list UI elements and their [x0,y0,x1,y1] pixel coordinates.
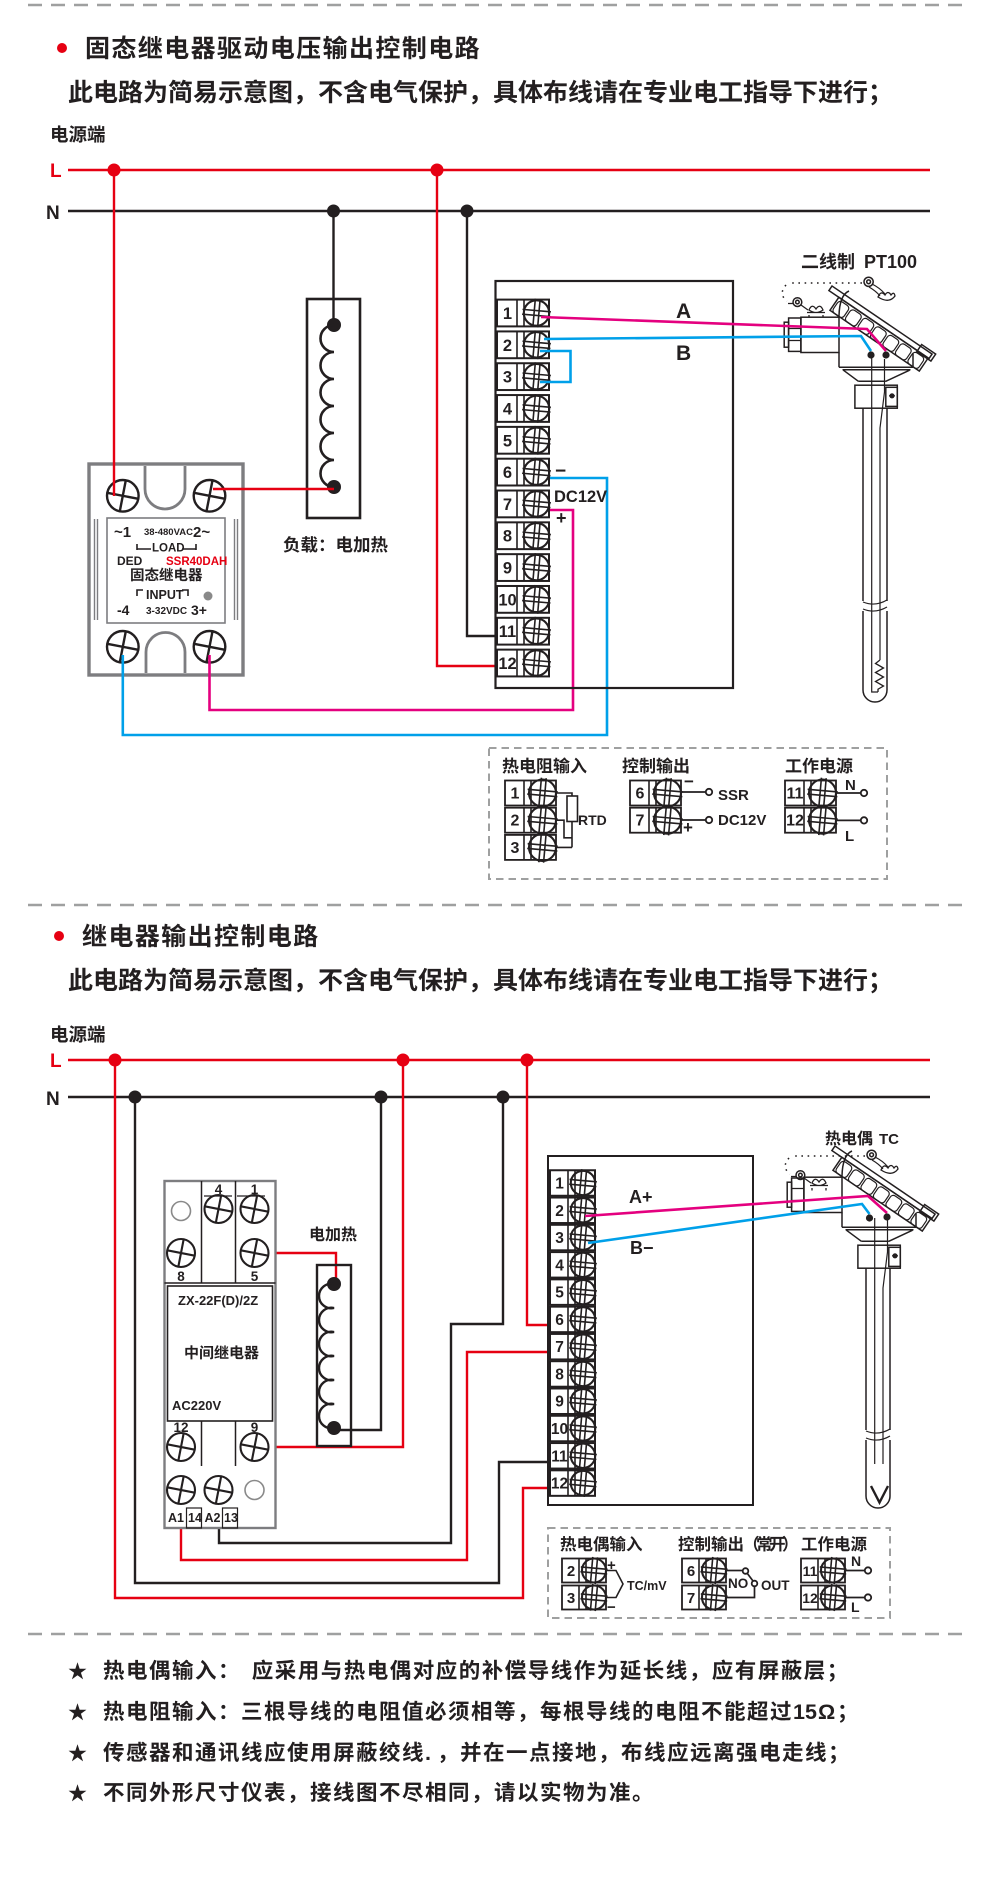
svg-text:7: 7 [555,1339,564,1356]
svg-text:A: A [676,300,691,323]
svg-text:1: 1 [555,1176,564,1193]
svg-text:L: L [845,828,854,845]
svg-text:7: 7 [687,1590,695,1607]
svg-text:3+: 3+ [191,602,207,618]
svg-text:LOAD: LOAD [152,543,185,555]
svg-text:DC12V: DC12V [718,812,766,829]
svg-text:8: 8 [503,528,512,546]
svg-text:3: 3 [503,369,512,387]
svg-text:B−: B− [630,1238,654,1258]
svg-text:RTD: RTD [578,812,607,828]
svg-text:−: − [555,461,566,482]
svg-text:2: 2 [555,1203,564,1220]
svg-text:A2: A2 [205,1511,221,1525]
svg-text:9: 9 [555,1394,564,1411]
svg-text:PT100: PT100 [864,252,917,272]
svg-text:TC: TC [879,1131,899,1148]
svg-text:38-480VAC: 38-480VAC [144,527,193,538]
svg-text:3: 3 [567,1590,575,1607]
svg-text:10: 10 [551,1421,568,1438]
svg-text:10: 10 [498,591,516,609]
svg-text:N: N [46,203,60,224]
svg-text:-4: -4 [117,602,130,618]
svg-text:12: 12 [498,655,516,673]
svg-text:DED: DED [117,554,143,568]
svg-text:6: 6 [636,786,645,803]
svg-text:6: 6 [687,1563,695,1580]
svg-text:12: 12 [802,1590,818,1606]
svg-text:−: − [607,1599,616,1616]
svg-text:11: 11 [787,786,804,803]
svg-text:L: L [50,1051,62,1072]
svg-text:SSR: SSR [718,787,749,804]
svg-text:5: 5 [503,432,512,450]
svg-text:+: + [556,508,567,528]
svg-text:13: 13 [224,1511,238,1525]
svg-text:8: 8 [177,1269,185,1284]
svg-text:2: 2 [567,1563,575,1580]
svg-text:−: − [684,772,694,791]
svg-text:SSR40DAH: SSR40DAH [166,556,227,568]
svg-text:11: 11 [551,1448,568,1465]
svg-text:.: . [425,1741,431,1765]
svg-text:5: 5 [555,1285,564,1302]
svg-text:OUT: OUT [761,1578,790,1593]
svg-text:1: 1 [511,786,520,803]
svg-text:~1: ~1 [114,524,131,541]
svg-text:2: 2 [503,337,512,355]
svg-text:1: 1 [503,305,512,323]
svg-text:2: 2 [511,813,520,830]
svg-text:3: 3 [555,1230,564,1247]
svg-text:L: L [50,161,62,182]
svg-text:12: 12 [551,1476,568,1493]
svg-text:8: 8 [555,1366,564,1383]
svg-text:14: 14 [188,1511,202,1525]
svg-text:4: 4 [503,400,513,418]
svg-text:6: 6 [555,1312,564,1329]
svg-text:5: 5 [251,1269,259,1284]
svg-text:ZX-22F(D)/2Z: ZX-22F(D)/2Z [178,1293,258,1308]
svg-text:3: 3 [511,840,520,857]
svg-text:L: L [851,1599,860,1615]
svg-text:INPUT: INPUT [146,588,184,602]
svg-text:A1: A1 [168,1511,184,1525]
svg-text:15: 15 [793,1700,817,1724]
svg-text:4: 4 [555,1257,564,1274]
svg-text:NO: NO [728,1576,748,1591]
svg-text:B: B [676,342,691,365]
svg-text:9: 9 [503,560,512,578]
svg-text:N: N [845,777,856,794]
svg-text:12: 12 [786,813,804,830]
svg-text:3-32VDC: 3-32VDC [146,606,187,617]
svg-text:2~: 2~ [193,524,210,541]
svg-text:+: + [683,818,693,837]
svg-text:6: 6 [503,464,512,482]
svg-text:7: 7 [503,496,512,514]
svg-text:N: N [851,1553,861,1569]
svg-text:N: N [46,1089,60,1110]
svg-text:DC12V: DC12V [554,488,607,506]
svg-text:A+: A+ [629,1187,653,1207]
svg-text:11: 11 [803,1563,818,1579]
svg-text:+: + [607,1557,616,1574]
svg-text:11: 11 [499,623,516,641]
svg-text:AC220V: AC220V [172,1398,221,1413]
svg-text:TC/mV: TC/mV [627,1579,667,1593]
svg-text:7: 7 [636,813,645,830]
svg-text:Ω: Ω [818,1700,835,1724]
